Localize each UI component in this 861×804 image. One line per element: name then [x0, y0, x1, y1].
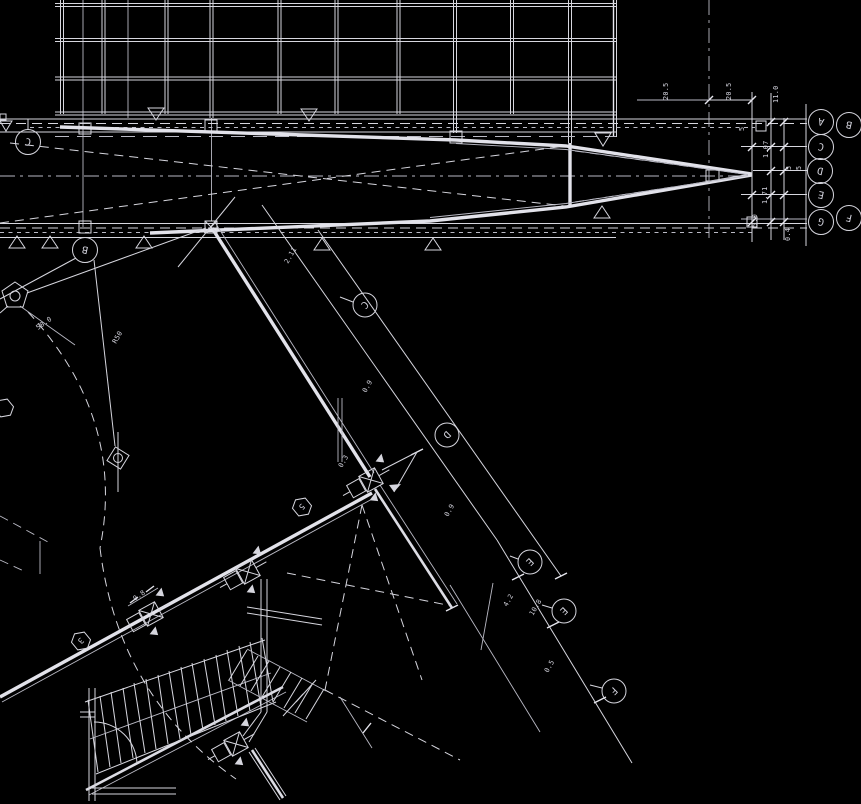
svg-text:E: E: [523, 555, 535, 567]
svg-text:C: C: [358, 298, 370, 310]
section-marker-left-edge: [0, 121, 12, 131]
dim-text: 0.9: [443, 503, 457, 518]
svg-text:B: B: [845, 118, 853, 130]
grid-bubble-wing-e2: E: [542, 599, 576, 623]
detail-tag-5: 5: [297, 502, 307, 512]
grid-bubble-right-a: A: [809, 110, 834, 135]
door-swing-arc: [94, 722, 137, 764]
svg-text:G: G: [817, 215, 825, 227]
wing-dashed-lines: [0, 312, 460, 779]
svg-text:B: B: [81, 243, 89, 255]
wing-leaders: [0, 197, 417, 748]
dim-text: 5.0: [751, 214, 759, 227]
svg-text:F: F: [845, 211, 853, 223]
dim-text: 10.8: [528, 598, 544, 617]
svg-text:E: E: [557, 604, 569, 616]
lower-band: [0, 206, 807, 250]
pier-bracing: [0, 143, 565, 223]
dim-text: 1.07: [762, 140, 770, 158]
dim-text: 0.8: [132, 589, 147, 603]
dim-text: 5: [795, 166, 803, 170]
dim-text: 11.0: [772, 85, 780, 103]
dim-text: 5: [785, 166, 793, 170]
steel-joint-3: [114, 588, 181, 649]
grid-bubble-right-d: D: [808, 159, 833, 184]
grid-bubble-wing-d: D: [435, 423, 459, 447]
dim-text: 0.4: [784, 228, 792, 241]
grid-bubble-right-g: G: [809, 210, 834, 235]
dimension-ticks: [705, 96, 788, 226]
dim-text: 2.11: [283, 246, 299, 265]
grid-bubble-wing-c: C: [340, 293, 377, 317]
dim-text: 20.5: [725, 82, 733, 100]
grid-bubble-right-c: C: [809, 135, 834, 160]
svg-text:D: D: [440, 428, 452, 440]
structural-nodes: [0, 221, 401, 779]
grid-bubbles: C B C D E E F: [16, 110, 861, 704]
dim-text: 0.5: [543, 659, 557, 674]
svg-text:D: D: [816, 164, 824, 176]
floor-plan-canvas: 20.5 20.5 11.0 1.07 5 5 1.71 5.0 0.4 5: [0, 0, 861, 804]
dim-text: 58.0: [35, 315, 54, 332]
detail-tags: 5 3: [0, 396, 313, 653]
dim-text: 20.5: [662, 82, 670, 100]
grid-bubble-left-c: C: [16, 119, 41, 155]
wing-walls: [0, 224, 457, 801]
upper-band: [0, 108, 807, 146]
dim-text: R50: [111, 330, 125, 345]
grid-bubble-right-f: F: [837, 206, 861, 231]
dim-text: 0.3: [337, 454, 351, 469]
svg-text:C: C: [817, 140, 825, 152]
section-marker-down-1: [148, 108, 164, 120]
wing-grid-lines: [262, 205, 632, 763]
detail-tag-3: 3: [76, 636, 86, 646]
dim-text: 5: [738, 127, 746, 131]
support-marker-5: [425, 238, 441, 250]
svg-text:F: F: [607, 684, 619, 696]
tapered-pier: [60, 127, 752, 233]
grid-bubble-wing-e1: E: [510, 550, 542, 574]
grid-bubble-left-b: B: [73, 238, 98, 263]
grid-bubble-right-e: E: [809, 183, 834, 208]
grid-bubble-right-b: B: [837, 113, 861, 138]
svg-text:C: C: [24, 135, 32, 147]
curtain-wall-grid: [55, 0, 617, 227]
blueprint-screen: 20.5 20.5 11.0 1.07 5 5 1.71 5.0 0.4 5: [0, 0, 861, 804]
dim-text: 0.9: [361, 379, 375, 394]
svg-text:A: A: [817, 115, 825, 127]
dim-text: 4.2: [502, 593, 516, 608]
section-marker-down-3: [595, 133, 611, 146]
grid-bubble-wing-f: F: [590, 679, 626, 703]
staircase: [85, 638, 326, 774]
dim-text: 1.71: [761, 186, 769, 204]
support-marker-6: [594, 206, 610, 218]
svg-text:E: E: [817, 188, 825, 200]
